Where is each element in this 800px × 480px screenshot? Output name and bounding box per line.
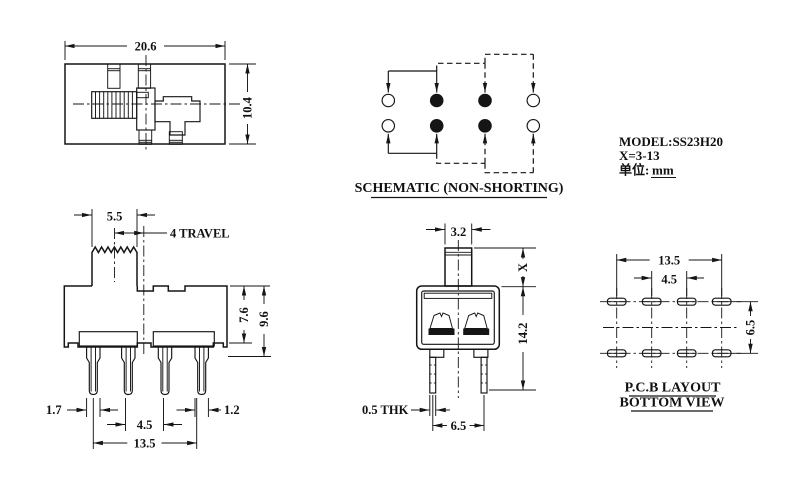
dim-pcb-row-group: 6.5 xyxy=(733,302,758,354)
top-view: 20.6 10.4 xyxy=(65,40,256,152)
dim-pcb-inner-group: 4.5 xyxy=(634,271,704,296)
dim-top-height: 10.4 xyxy=(241,96,255,119)
terminal-common xyxy=(478,119,492,133)
pcb-subtitle: BOTTOM VIEW xyxy=(620,396,725,411)
side-pin-left xyxy=(430,357,436,393)
front-view: 5.5 4 TRAVEL 7.6 9.6 1.7 xyxy=(46,209,271,451)
dim-side-knob-height-group: X xyxy=(474,248,536,287)
side-pin-right xyxy=(481,357,487,393)
dim-front-pin-pitch-group: 4.5 xyxy=(107,398,182,432)
terminal-block-right xyxy=(153,332,214,346)
contact-plate xyxy=(155,97,200,135)
dim-front-pin-span: 13.5 xyxy=(134,437,156,451)
contact-position-dashed-top xyxy=(437,54,534,92)
units-value: mm xyxy=(652,163,674,178)
terminal-open xyxy=(382,120,394,132)
dim-front-pin-pitch: 4.5 xyxy=(137,418,153,432)
dim-side-knob-height: X xyxy=(516,263,530,272)
pcb-title: P.C.B LAYOUT xyxy=(625,381,721,396)
pin-3 xyxy=(158,347,171,395)
side-view: 3.2 X 14.2 0.5 THK xyxy=(362,224,536,434)
contact-position-solid-top xyxy=(388,71,436,93)
dim-front-pin-left: 1.7 xyxy=(46,403,62,417)
dim-pcb-span: 13.5 xyxy=(658,254,680,268)
pin-2 xyxy=(122,347,135,395)
contact-position-solid-bottom xyxy=(388,134,436,154)
dim-front-total-height: 9.6 xyxy=(257,311,271,327)
side-contact-right xyxy=(463,313,489,335)
terminal-common xyxy=(430,119,444,133)
schematic-title: SCHEMATIC (NON-SHORTING) xyxy=(355,181,564,196)
terminal-block-left xyxy=(79,332,137,346)
dim-pcb-row: 6.5 xyxy=(744,320,758,336)
terminal-open xyxy=(382,94,394,106)
dim-side-overall: 14.2 xyxy=(516,323,530,345)
pcb-view: 13.5 4.5 6.5 P.C.B LAYOUT BOTTOM VIEW xyxy=(600,254,758,412)
pin-1 xyxy=(87,347,100,395)
side-stub-left xyxy=(430,349,444,357)
dim-top-width: 20.6 xyxy=(135,40,157,54)
terminal-common xyxy=(430,94,444,108)
dim-front-knob-width: 5.5 xyxy=(107,210,123,224)
dim-front-body-height: 7.6 xyxy=(237,307,251,323)
dim-side-pitch-group: 6.5 xyxy=(433,395,484,433)
switch-drawing: 20.6 10.4 xyxy=(0,0,800,480)
schematic-view: SCHEMATIC (NON-SHORTING) xyxy=(355,54,564,197)
dim-side-thickness-group: 0.5 THK xyxy=(362,395,450,417)
model-x-range: X=3-13 xyxy=(619,148,660,163)
drawing-sheet: 20.6 10.4 xyxy=(0,0,800,480)
terminal-open xyxy=(527,120,539,132)
dim-front-pin-left-group: 1.7 xyxy=(46,398,118,417)
pin-4 xyxy=(195,347,208,395)
model-info: MODEL:SS23H20 X=3-13 单位: mm xyxy=(619,134,723,178)
dim-front-pin-right: 1.2 xyxy=(224,403,240,417)
dim-side-knob-width: 3.2 xyxy=(451,225,467,239)
dim-top-width-group: 20.6 xyxy=(65,40,225,61)
units-label: 单位: xyxy=(619,163,649,178)
dim-side-overall-group: 14.2 xyxy=(489,287,536,390)
dim-side-pitch: 6.5 xyxy=(451,419,467,433)
terminal-open xyxy=(527,94,539,106)
side-stub-right xyxy=(474,349,488,357)
dim-front-travel-group: 4 TRAVEL xyxy=(115,227,230,241)
slider-knurl xyxy=(92,92,149,119)
dim-pcb-inner: 4.5 xyxy=(661,273,677,287)
front-body xyxy=(64,286,227,347)
terminal-common xyxy=(478,94,492,108)
dim-front-travel: 4 TRAVEL xyxy=(170,227,230,241)
dim-side-thickness: 0.5 THK xyxy=(362,403,409,417)
dim-front-pin-right-group: 1.2 xyxy=(177,398,240,417)
side-contact-left xyxy=(429,313,455,335)
model-number: MODEL:SS23H20 xyxy=(619,134,723,149)
contact-position-dashed-bottom xyxy=(437,134,534,173)
